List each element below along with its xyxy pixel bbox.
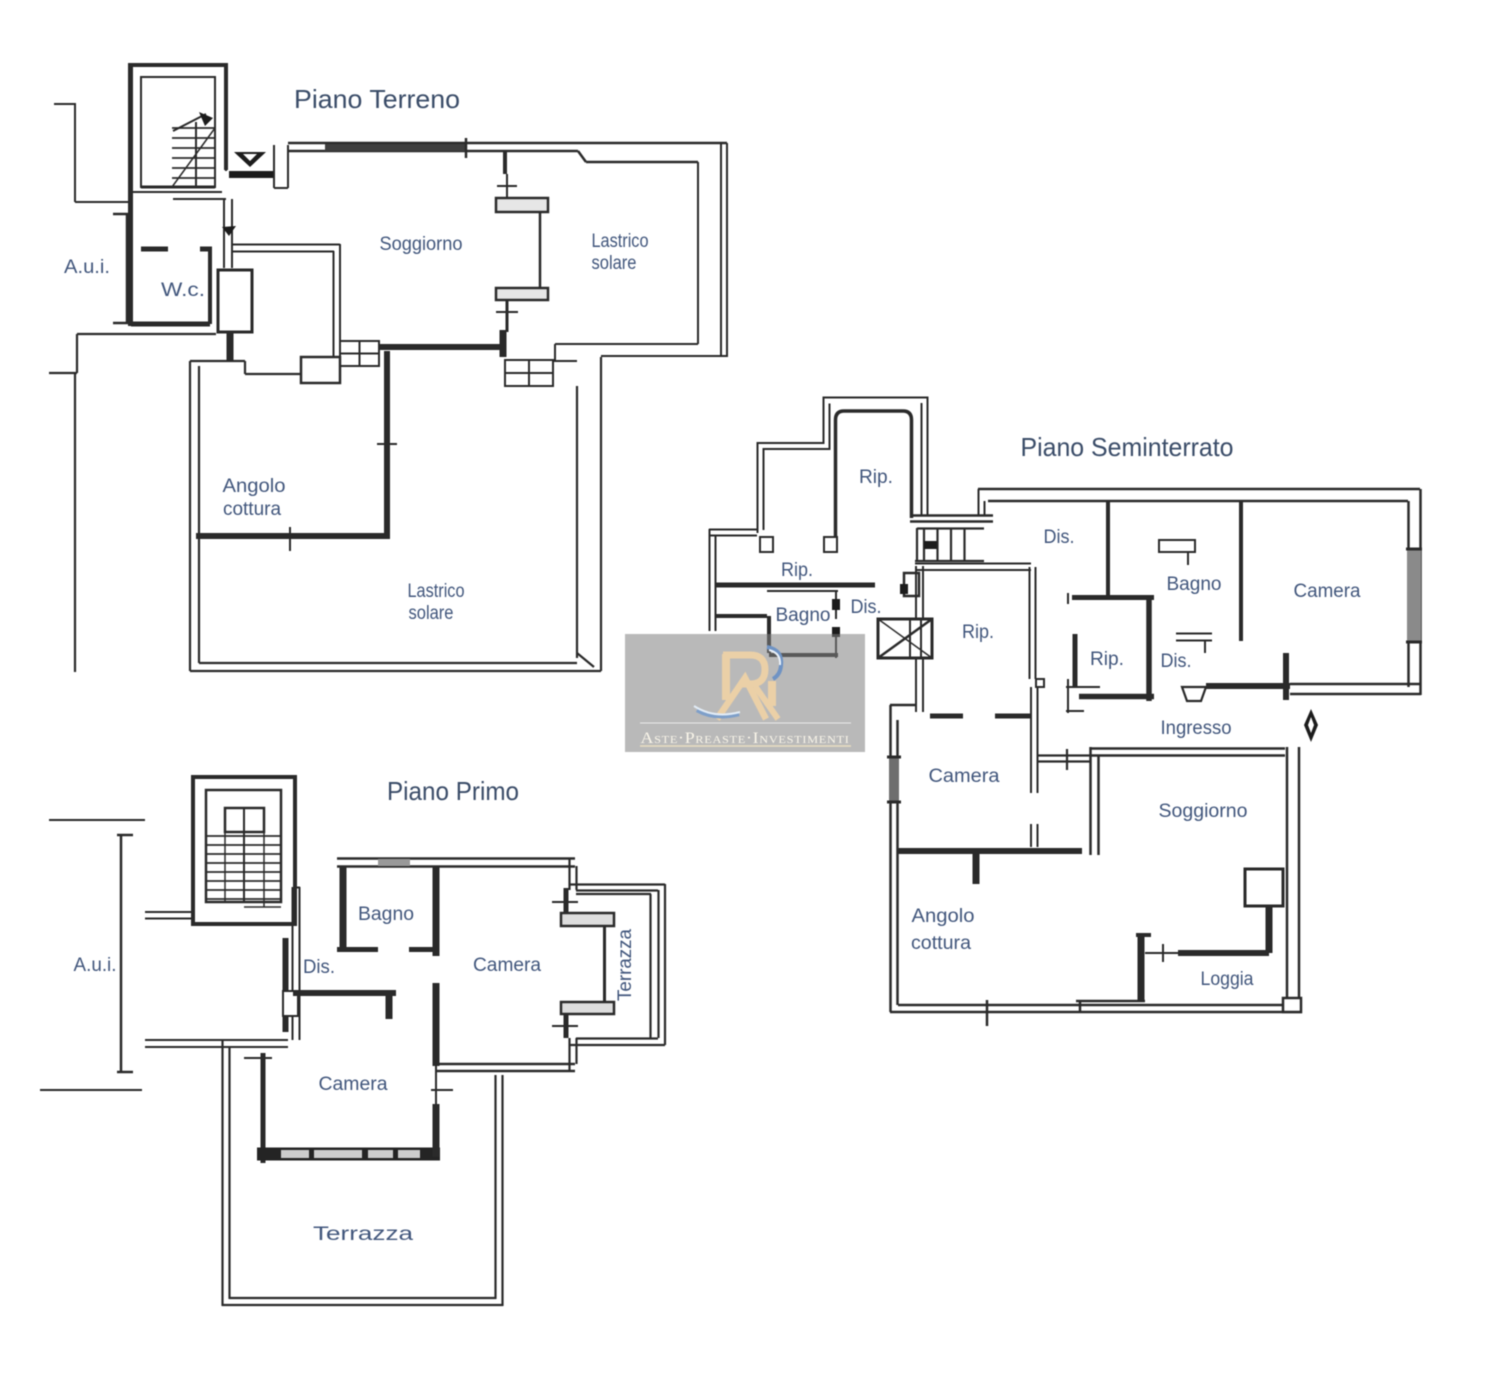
svg-text:Piano Primo: Piano Primo <box>387 776 519 806</box>
svg-text:Piano Terreno: Piano Terreno <box>294 84 460 114</box>
svg-text:A.u.i.: A.u.i. <box>64 257 110 278</box>
svg-text:solare: solare <box>592 253 637 274</box>
svg-text:Soggiorno: Soggiorno <box>1159 801 1248 822</box>
svg-text:Angolo: Angolo <box>223 476 286 497</box>
svg-text:Camera: Camera <box>319 1074 388 1095</box>
svg-text:Terrazza: Terrazza <box>615 929 636 1001</box>
svg-text:Soggiorno: Soggiorno <box>380 234 463 255</box>
svg-text:Lastrico: Lastrico <box>408 581 465 602</box>
svg-text:Rip.: Rip. <box>781 560 813 581</box>
svg-text:Angolo: Angolo <box>912 906 975 927</box>
svg-text:Rip.: Rip. <box>962 622 994 643</box>
svg-text:Camera: Camera <box>1294 581 1361 602</box>
svg-text:Loggia: Loggia <box>1201 969 1254 990</box>
svg-text:Ingresso: Ingresso <box>1161 718 1232 739</box>
svg-text:Camera: Camera <box>473 955 541 976</box>
svg-text:Rip.: Rip. <box>1090 649 1124 670</box>
svg-text:Lastrico: Lastrico <box>592 231 649 252</box>
svg-text:Bagno: Bagno <box>358 904 414 925</box>
svg-text:Dis.: Dis. <box>851 597 882 618</box>
svg-text:cottura: cottura <box>911 933 971 954</box>
svg-text:Aste·Preaste·Investimenti: Aste·Preaste·Investimenti <box>641 730 850 747</box>
svg-text:Piano Seminterrato: Piano Seminterrato <box>1021 432 1234 462</box>
svg-text:Rip.: Rip. <box>859 467 893 488</box>
svg-text:Terrazza: Terrazza <box>313 1224 414 1245</box>
svg-text:Bagno: Bagno <box>776 605 831 626</box>
svg-text:A.u.i.: A.u.i. <box>74 955 117 976</box>
svg-text:Camera: Camera <box>929 766 1000 787</box>
svg-text:cottura: cottura <box>223 499 281 520</box>
svg-text:W.c.: W.c. <box>161 280 205 301</box>
svg-text:Dis.: Dis. <box>303 957 335 978</box>
svg-text:Dis.: Dis. <box>1044 527 1075 548</box>
svg-text:solare: solare <box>409 603 454 624</box>
svg-text:Dis.: Dis. <box>1161 651 1192 672</box>
svg-text:Bagno: Bagno <box>1167 574 1222 595</box>
